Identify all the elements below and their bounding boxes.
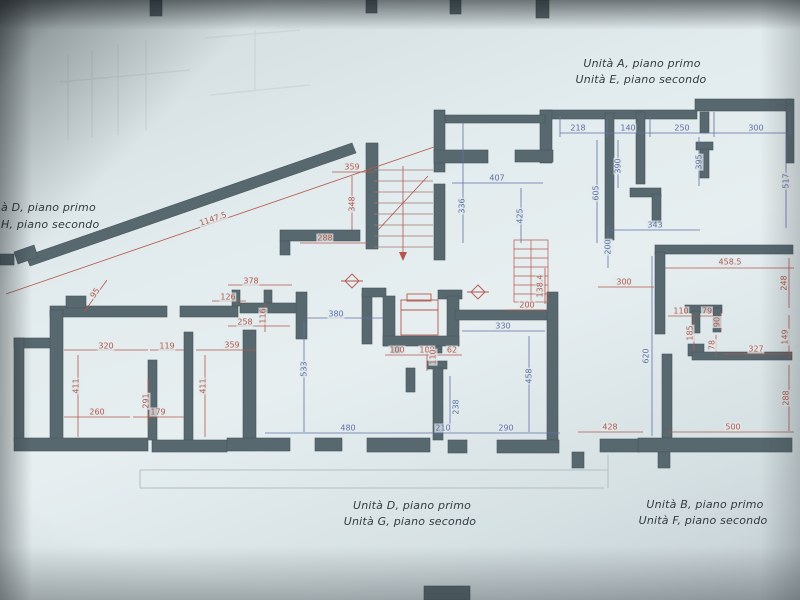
dimension-label: 149: [781, 328, 790, 345]
dimension-label: 343: [646, 221, 663, 230]
main-staircase: [374, 166, 433, 261]
dimension-label: 327: [747, 345, 764, 354]
dimension-label: 480: [339, 424, 356, 433]
dimension-label: 380: [327, 310, 344, 319]
dimension-label: 425: [516, 207, 525, 224]
dimension-label: 300: [747, 124, 764, 133]
dimension-label: 110: [672, 307, 689, 316]
dimension-label: 140: [619, 124, 636, 133]
red-dimension-lines: [6, 147, 794, 437]
dimension-label: 605: [592, 184, 601, 201]
dimension-label: 238: [452, 398, 461, 415]
dimension-label: 517: [782, 172, 791, 189]
elevator-symbol: [401, 294, 438, 335]
dimension-label: 330: [494, 322, 511, 331]
dimension-label: 359: [223, 341, 240, 350]
dimension-label: 258: [236, 318, 253, 327]
dimension-label: 336: [458, 197, 467, 214]
dimension-label: 78: [708, 339, 717, 351]
dimension-label: 348: [348, 195, 357, 212]
dimension-label: 248: [780, 274, 789, 291]
ghost-lines: [60, 30, 310, 140]
dimension-label: 200: [604, 238, 613, 255]
dimension-label: 458: [525, 367, 534, 384]
dimension-label: 620: [642, 347, 651, 364]
dimension-label: 290: [497, 424, 514, 433]
dimension-label: 458.5: [718, 258, 743, 267]
dimension-label: 288: [782, 389, 791, 406]
dimension-label: 218: [569, 124, 586, 133]
unit-label-bottom-right-line1: Unità B, piano primo: [646, 498, 763, 511]
dimension-label: 116: [259, 307, 268, 324]
dimension-label: 138.4: [536, 274, 545, 299]
dimension-label: 110: [429, 348, 438, 365]
unit-label-left-line2: H, piano secondo: [1, 218, 99, 231]
dimension-label: 62: [446, 346, 458, 355]
dimension-label: 359: [343, 163, 360, 172]
floor-plan-photo: 2181402503003906053953435174073364253304…: [0, 0, 800, 600]
dimension-label: 288: [316, 234, 333, 243]
dimension-label: 533: [300, 360, 309, 377]
dimension-label: 250: [673, 124, 690, 133]
dimension-label: 260: [88, 408, 105, 417]
dimension-label: 185: [686, 324, 695, 341]
dimension-label: 428: [601, 423, 618, 432]
dimension-label: 179: [149, 408, 166, 417]
dimension-label: 378: [242, 277, 259, 286]
unit-label-top-right-line2: Unità E, piano secondo: [576, 73, 707, 86]
unit-label-top-right-line1: Unità A, piano primo: [583, 57, 700, 70]
dimension-label: 79: [701, 307, 713, 316]
dimension-label: 320: [97, 342, 114, 351]
dimension-label: 126: [219, 293, 236, 302]
terrace-faint-lines: [140, 455, 608, 488]
unit-label-bottom-center-line2: Unità G, piano secondo: [344, 515, 477, 528]
dimension-label: 119: [158, 342, 175, 351]
unit-label-bottom-right-line2: Unità F, piano secondo: [639, 514, 768, 527]
dimension-label: 407: [488, 174, 505, 183]
dimension-label: 90: [713, 316, 722, 328]
dimension-label: 210: [434, 424, 451, 433]
dimension-label: 411: [72, 377, 81, 394]
unit-label-bottom-center-line1: Unità D, piano primo: [353, 499, 471, 512]
dimension-label: 395: [695, 153, 704, 170]
dimension-label: 300: [615, 278, 632, 287]
dimension-label: 411: [199, 377, 208, 394]
dimension-label: 390: [614, 157, 623, 174]
dimension-label: 100: [388, 346, 405, 355]
unit-label-left-line1: à D, piano primo: [1, 201, 96, 214]
dimension-label: 200: [518, 301, 535, 310]
dimension-label: 500: [724, 423, 741, 432]
